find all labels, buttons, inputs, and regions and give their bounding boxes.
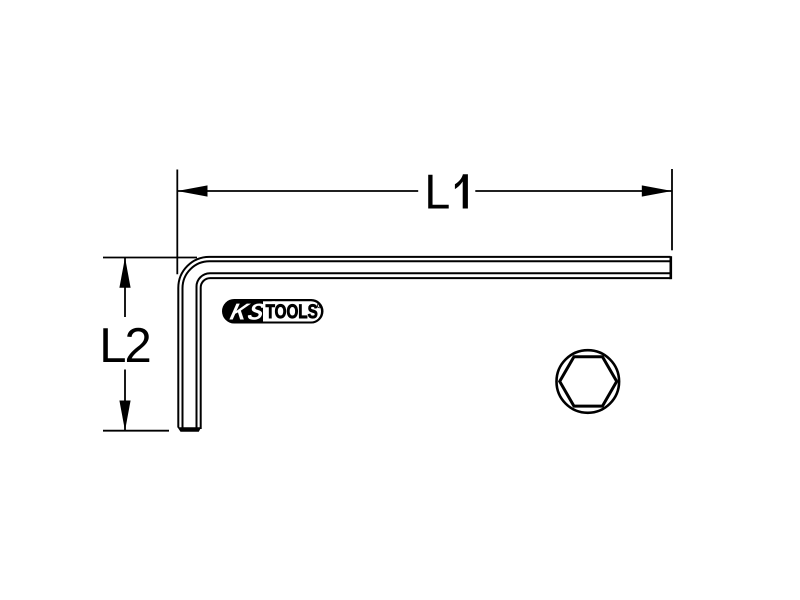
svg-text:L: L [424,166,450,220]
svg-text:TOOLS: TOOLS [266,301,318,323]
svg-text:L2: L2 [99,319,150,373]
svg-text:KS: KS [228,299,268,325]
